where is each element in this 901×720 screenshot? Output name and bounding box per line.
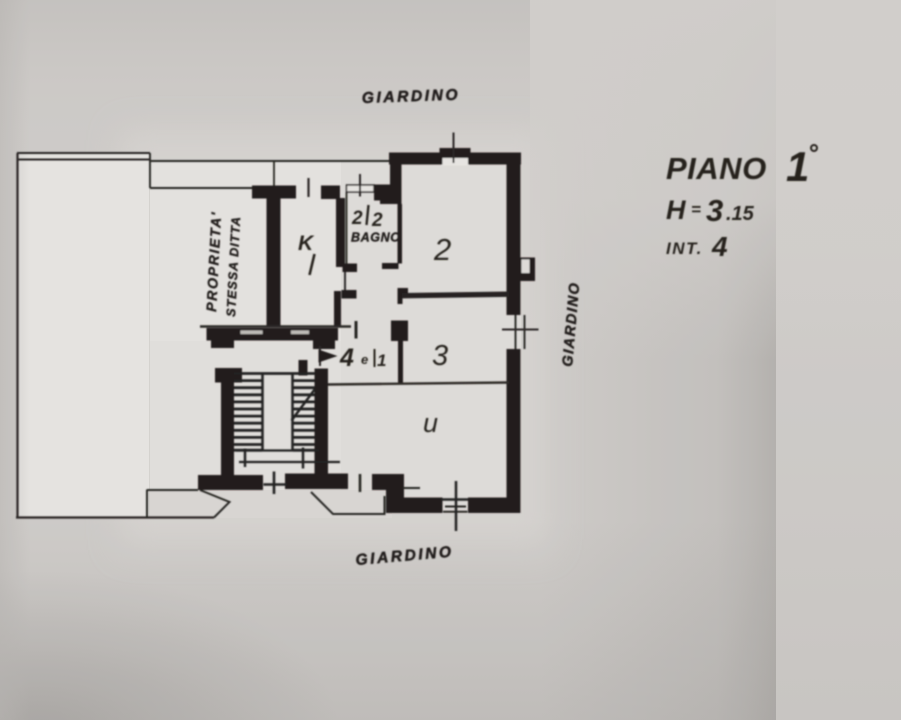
svg-text:1: 1 xyxy=(377,351,386,370)
svg-text:4: 4 xyxy=(339,344,354,372)
svg-text:.15: .15 xyxy=(726,203,755,225)
svg-text:u: u xyxy=(423,408,438,438)
svg-text:=: = xyxy=(691,200,701,219)
svg-text:2: 2 xyxy=(433,232,451,267)
svg-text:PIANO: PIANO xyxy=(666,151,767,186)
svg-text:BAGNO: BAGNO xyxy=(351,231,401,245)
svg-text:K: K xyxy=(298,232,315,255)
svg-text:1: 1 xyxy=(786,143,809,190)
svg-text:INT.: INT. xyxy=(666,239,703,258)
svg-text:e: e xyxy=(361,352,368,367)
svg-text:3: 3 xyxy=(706,193,723,228)
svg-text:4: 4 xyxy=(711,231,728,262)
svg-text:H: H xyxy=(666,195,686,225)
svg-text:2: 2 xyxy=(351,208,363,229)
svg-text:2: 2 xyxy=(371,210,383,231)
svg-text:GIARDINO: GIARDINO xyxy=(362,87,461,107)
svg-text:3: 3 xyxy=(432,340,448,372)
